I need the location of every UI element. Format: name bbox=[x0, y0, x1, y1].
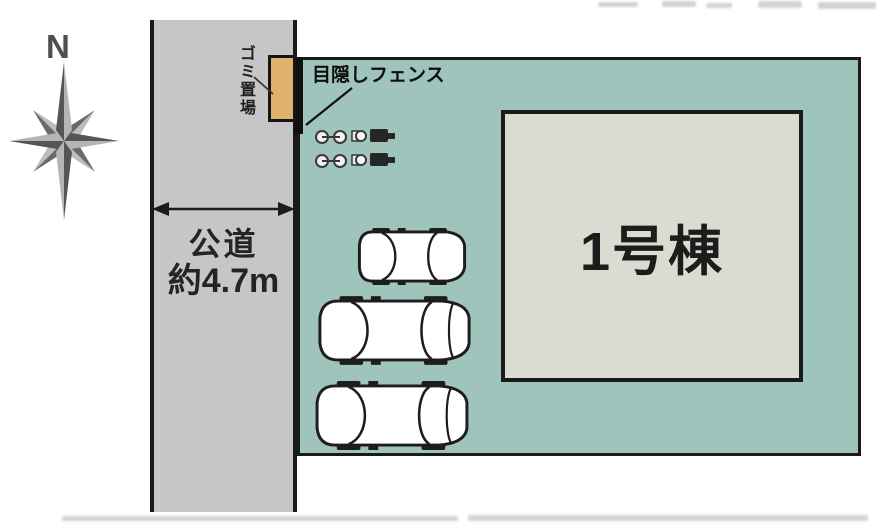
print-artifact bbox=[598, 2, 638, 7]
garbage-storage-label: ゴミ置場 bbox=[233, 45, 257, 140]
building: 1号棟 bbox=[501, 110, 803, 382]
print-artifact bbox=[706, 3, 732, 8]
print-artifact bbox=[662, 1, 696, 7]
site-plan: N 公道 約4.7m 目隠 bbox=[0, 0, 880, 524]
print-artifact bbox=[758, 1, 802, 8]
garbage-storage-box bbox=[268, 55, 296, 122]
road-width-label: 約4.7m bbox=[146, 253, 301, 302]
car-icon bbox=[316, 296, 473, 365]
bicycle-icon bbox=[314, 127, 396, 145]
building-label: 1号棟 bbox=[580, 207, 724, 286]
compass-rose-icon bbox=[9, 62, 119, 220]
print-artifact bbox=[468, 515, 868, 521]
compass-north-label: N bbox=[46, 28, 70, 66]
print-artifact bbox=[818, 2, 876, 9]
print-artifact bbox=[62, 516, 458, 521]
car-icon bbox=[356, 228, 468, 285]
bicycle-icon bbox=[314, 151, 396, 169]
privacy-fence-label: 目隠しフェンス bbox=[312, 60, 445, 87]
car-icon bbox=[313, 381, 471, 450]
road-width-arrow-icon bbox=[152, 200, 295, 218]
compass-rose: N bbox=[6, 28, 122, 224]
